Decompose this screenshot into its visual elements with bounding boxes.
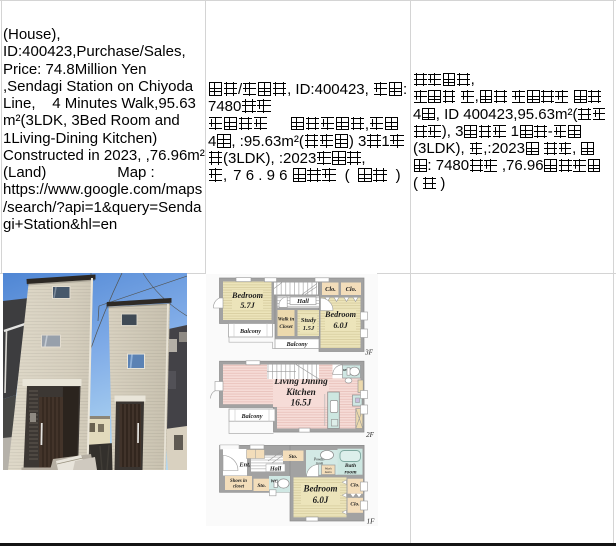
svg-text:Clo.: Clo. xyxy=(350,501,359,507)
svg-text:wc: wc xyxy=(343,368,347,372)
svg-text:Sto.: Sto. xyxy=(257,483,266,489)
svg-text:Clo.: Clo. xyxy=(325,286,336,293)
svg-text:Bedroom: Bedroom xyxy=(324,310,356,319)
svg-text:16.5J: 16.5J xyxy=(290,397,311,407)
svg-text:1.5J: 1.5J xyxy=(302,325,314,332)
svg-text:Walk in: Walk in xyxy=(277,316,294,322)
svg-text:Closet: Closet xyxy=(279,324,293,330)
svg-text:1F: 1F xyxy=(366,517,375,525)
svg-text:6.0J: 6.0J xyxy=(312,495,328,505)
svg-text:closet: closet xyxy=(232,484,244,489)
svg-text:Balcony: Balcony xyxy=(285,341,307,348)
svg-text:Study: Study xyxy=(300,317,315,324)
svg-text:basin: basin xyxy=(324,470,331,474)
svg-text:Shoes in: Shoes in xyxy=(230,479,247,484)
svg-text:Hall: Hall xyxy=(296,298,309,305)
svg-text:Ent.: Ent. xyxy=(238,461,251,468)
svg-text:Bath: Bath xyxy=(343,463,355,469)
svg-text:WC: WC xyxy=(270,478,278,483)
svg-text:room: room xyxy=(344,469,357,475)
svg-text:3F: 3F xyxy=(364,348,374,356)
svg-text:Clo.: Clo. xyxy=(350,482,359,488)
svg-text:Sto.: Sto. xyxy=(288,454,297,460)
svg-text:2F: 2F xyxy=(366,431,375,439)
svg-text:Kitchen: Kitchen xyxy=(285,387,316,397)
svg-text:5.7J: 5.7J xyxy=(240,301,255,310)
svg-text:Hall: Hall xyxy=(268,465,281,472)
svg-text:Clo.: Clo. xyxy=(345,286,356,293)
svg-text:Balcony: Balcony xyxy=(239,327,261,334)
svg-text:Bedroom: Bedroom xyxy=(302,483,337,493)
svg-text:6.0J: 6.0J xyxy=(333,321,348,330)
svg-text:Bedroom: Bedroom xyxy=(231,291,263,300)
svg-text:Balcony: Balcony xyxy=(240,413,262,420)
